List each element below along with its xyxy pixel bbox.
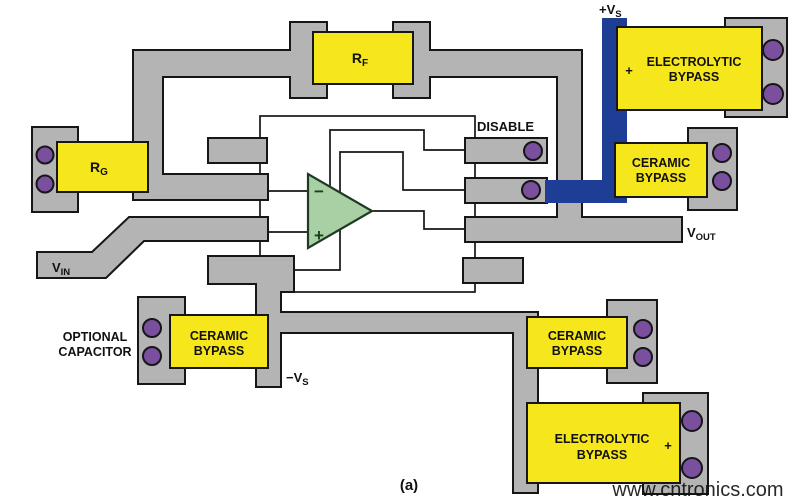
wire-output (372, 211, 465, 229)
label-vs-pos: +VS (599, 2, 622, 20)
wire-disable-pin (330, 130, 465, 190)
ceramic-bottom-right-label-line1: CERAMIC (548, 329, 606, 343)
label-figure: (a) (400, 477, 418, 494)
pcb-layout-diagram: − + RG RF ELECTROLYTIC BYPASS + CERAMIC … (0, 0, 792, 502)
cap-ceramic-top (615, 143, 707, 197)
ceramic-top-label-line1: CERAMIC (632, 156, 690, 170)
ceramic-bottom-left-label-line2: BYPASS (194, 344, 244, 358)
via (682, 411, 702, 431)
electrolytic-top-label-line2: BYPASS (669, 70, 719, 84)
via (763, 40, 783, 60)
via (634, 320, 652, 338)
via (763, 84, 783, 104)
electrolytic-bottom-polarity: + (664, 438, 672, 453)
pad-ic-pin-l1 (208, 138, 267, 163)
via (143, 319, 161, 337)
via (713, 144, 731, 162)
electrolytic-top-polarity: + (625, 63, 633, 78)
label-vout: VOUT (687, 225, 716, 243)
via (524, 142, 542, 160)
via (682, 458, 702, 478)
pad-ic-pin-r4 (463, 258, 523, 283)
via (634, 348, 652, 366)
label-vs-neg: −VS (286, 370, 309, 388)
label-optional-capacitor-line1: OPTIONAL (63, 330, 128, 344)
watermark: www.cntronics.com (611, 479, 783, 501)
ceramic-bottom-left-label-line1: CERAMIC (190, 329, 248, 343)
via (37, 147, 54, 164)
via (522, 181, 540, 199)
wire-supply-pin (340, 152, 465, 196)
via (713, 172, 731, 190)
opamp-plus-label: + (314, 226, 324, 245)
via (37, 176, 54, 193)
ceramic-top-label-line2: BYPASS (636, 171, 686, 185)
ceramic-bottom-right-label-line2: BYPASS (552, 344, 602, 358)
electrolytic-bottom-label-line2: BYPASS (577, 448, 627, 462)
trace-feedback-to-inverting-input (133, 22, 327, 200)
electrolytic-bottom-label-line1: ELECTROLYTIC (555, 432, 650, 446)
electrolytic-top-label-line1: ELECTROLYTIC (647, 55, 742, 69)
label-optional-capacitor-line2: CAPACITOR (58, 345, 131, 359)
opamp-minus-label: − (314, 182, 324, 201)
via (143, 347, 161, 365)
label-disable: DISABLE (477, 119, 534, 134)
circuit-diagram: − + RG RF ELECTROLYTIC BYPASS + CERAMIC … (0, 0, 792, 502)
